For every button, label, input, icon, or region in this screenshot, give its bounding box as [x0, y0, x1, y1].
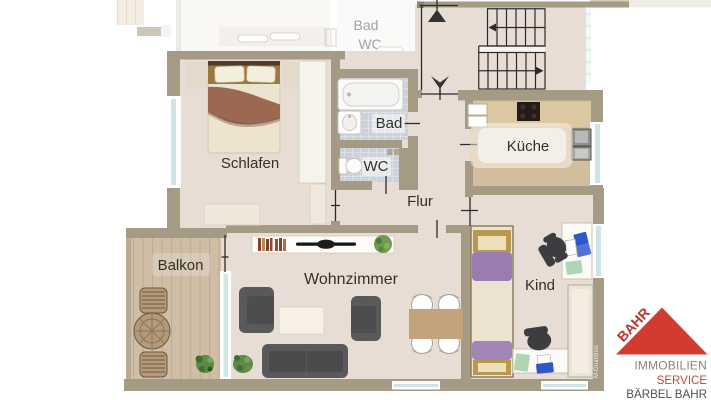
svg-text:SERVICE: SERVICE: [657, 375, 708, 387]
svg-text:Balkon: Balkon: [158, 257, 204, 274]
svg-text:WC: WC: [364, 158, 389, 175]
svg-text:BÄRBEL BAHR: BÄRBEL BAHR: [626, 388, 707, 400]
svg-text:Küche: Küche: [507, 138, 550, 155]
svg-text:Wohnzimmer: Wohnzimmer: [304, 271, 399, 288]
svg-text:IMMOBILIEN: IMMOBILIEN: [634, 359, 707, 373]
svg-text:M-Grundriss: M-Grundriss: [594, 345, 600, 378]
svg-text:Flur: Flur: [407, 193, 433, 210]
svg-text:Bad: Bad: [376, 115, 403, 132]
svg-text:Schlafen: Schlafen: [221, 155, 279, 172]
svg-text:Bad: Bad: [354, 17, 379, 33]
svg-text:Kind: Kind: [525, 277, 555, 294]
